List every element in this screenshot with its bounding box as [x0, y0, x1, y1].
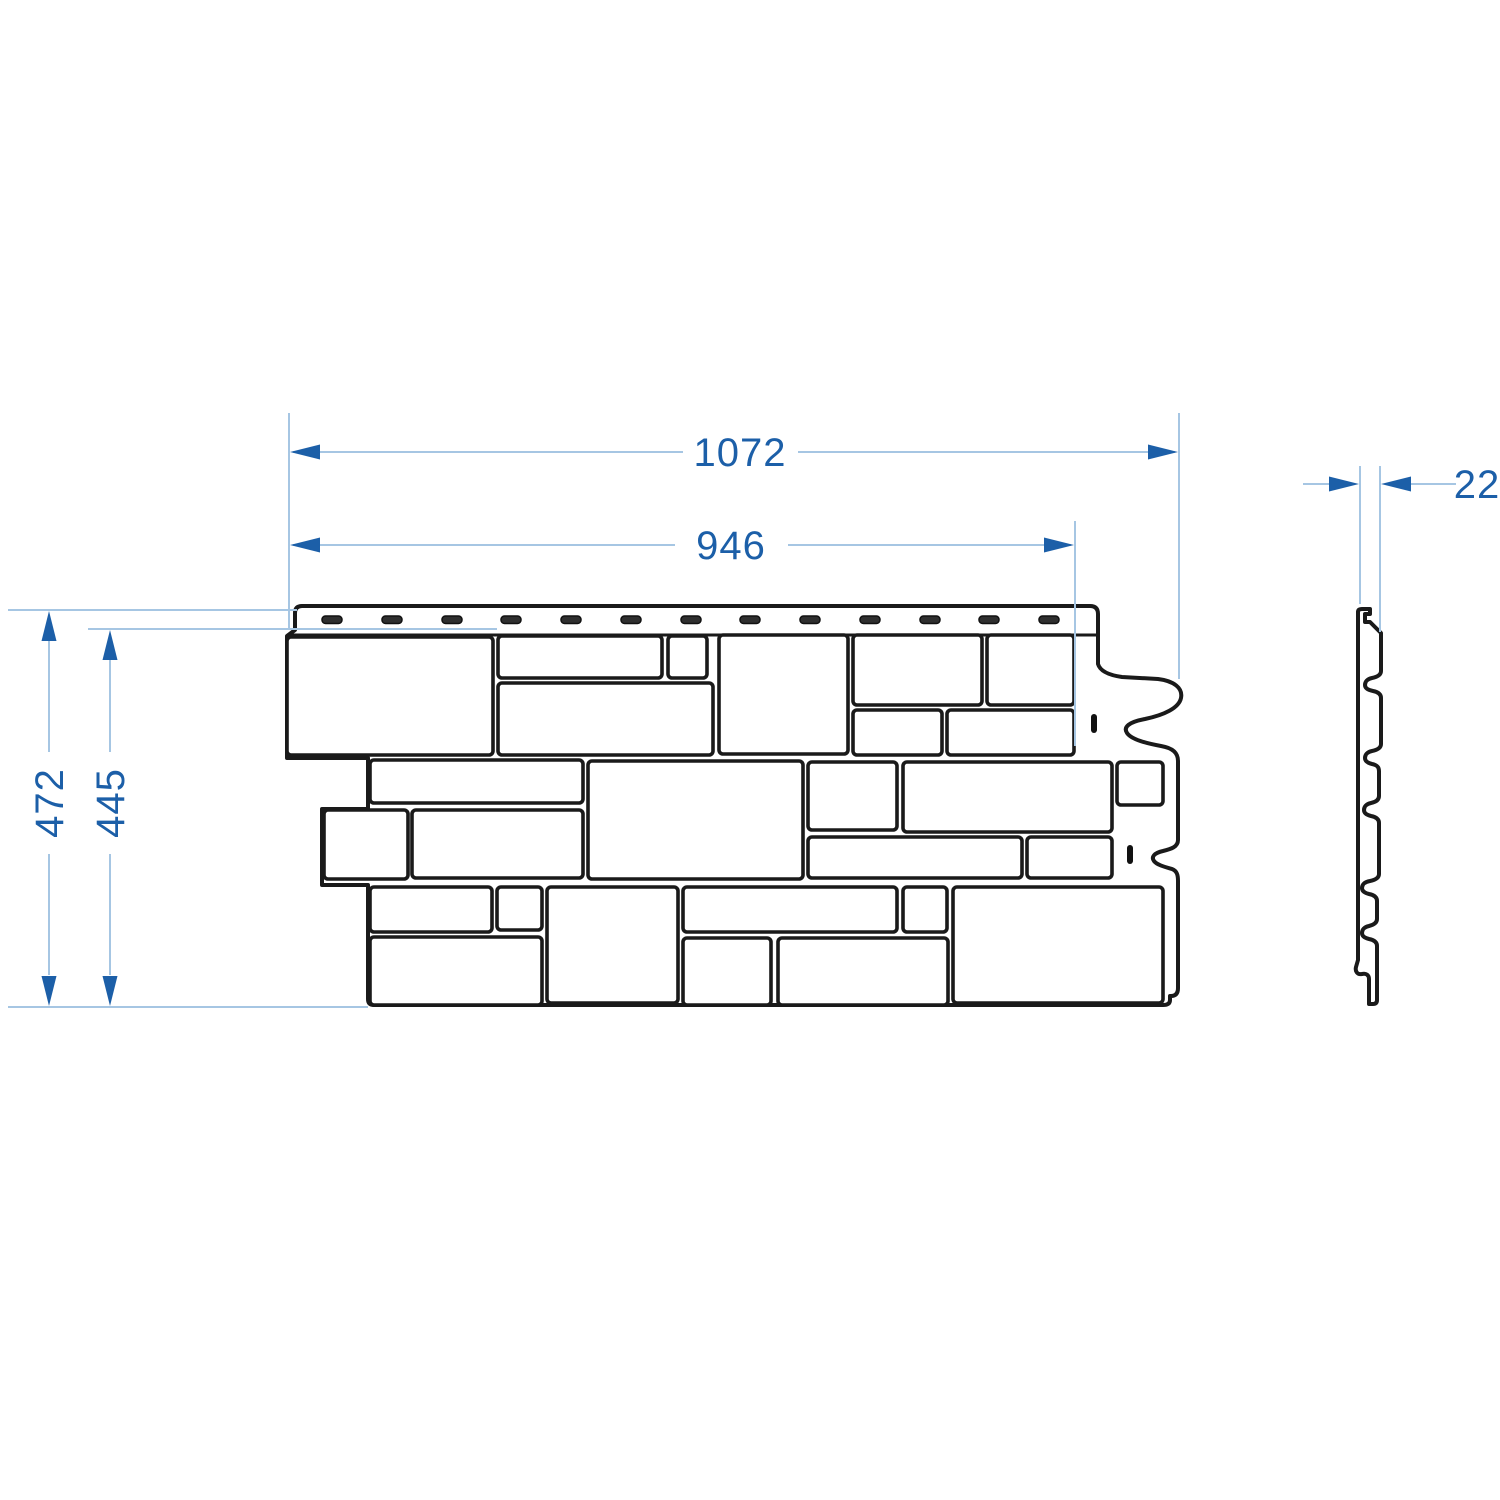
brick — [953, 887, 1163, 1003]
brick — [719, 635, 848, 754]
nail-slot — [1039, 616, 1059, 624]
arrowhead-right — [1044, 538, 1074, 553]
brick — [853, 635, 982, 705]
brick — [588, 761, 803, 879]
brick — [547, 887, 678, 1003]
arrowhead-right — [1329, 477, 1359, 492]
side-profile-outline — [1356, 609, 1381, 1004]
brick — [498, 636, 662, 678]
brick — [987, 635, 1074, 705]
nail-slot — [681, 616, 701, 624]
panel-front-view — [287, 606, 1181, 1005]
brick — [668, 636, 707, 678]
dim-overall-width: 1072 — [290, 431, 1178, 475]
nail-slot — [860, 616, 880, 624]
nail-slot — [740, 616, 760, 624]
dim-thickness: 22 — [1303, 463, 1500, 507]
brick — [683, 887, 897, 932]
nail-slot — [800, 616, 820, 624]
dim-working-width: 946 — [290, 524, 1074, 568]
brick — [370, 760, 583, 803]
dim-thickness-label: 22 — [1454, 463, 1500, 507]
nail-slot — [979, 616, 999, 624]
nail-slot — [382, 616, 402, 624]
brick — [1117, 762, 1163, 805]
brick — [778, 938, 948, 1005]
arrowhead-up — [103, 630, 118, 660]
panel-dimension-drawing: 1072 946 472 445 — [0, 0, 1500, 1500]
brick — [287, 637, 493, 755]
brick — [947, 710, 1074, 755]
arrowhead-down — [42, 976, 57, 1006]
drawing-canvas: 1072 946 472 445 — [0, 0, 1500, 1500]
edge-nail-slot — [1091, 714, 1097, 733]
bricks — [287, 635, 1163, 1005]
brick — [903, 762, 1112, 832]
brick — [412, 810, 583, 878]
dim-overall-width-label: 1072 — [694, 431, 787, 475]
brick — [853, 710, 942, 755]
dim-working-height: 445 — [89, 630, 133, 1006]
nail-slot — [322, 616, 342, 624]
brick — [324, 810, 408, 879]
brick — [370, 887, 492, 932]
brick — [370, 937, 542, 1005]
dim-overall-height-label: 472 — [28, 768, 72, 838]
brick — [1027, 837, 1112, 878]
brick — [498, 683, 713, 755]
nail-slot — [442, 616, 462, 624]
nail-slot — [501, 616, 521, 624]
edge-nail-slot — [1127, 845, 1133, 864]
nail-slot — [920, 616, 940, 624]
panel-side-profile — [1356, 609, 1381, 1004]
dim-working-width-label: 946 — [696, 524, 766, 568]
brick — [497, 887, 542, 930]
nail-slot — [561, 616, 581, 624]
arrowhead-left — [290, 445, 320, 460]
brick — [683, 938, 771, 1005]
nail-slot — [621, 616, 641, 624]
dim-working-height-label: 445 — [89, 768, 133, 838]
arrowhead-up — [42, 611, 57, 641]
brick — [808, 837, 1022, 878]
dim-overall-height: 472 — [28, 611, 72, 1006]
brick — [903, 887, 947, 932]
arrowhead-down — [103, 976, 118, 1006]
arrowhead-left — [1381, 477, 1411, 492]
arrowhead-right — [1148, 445, 1178, 460]
brick — [808, 762, 897, 830]
arrowhead-left — [290, 538, 320, 553]
